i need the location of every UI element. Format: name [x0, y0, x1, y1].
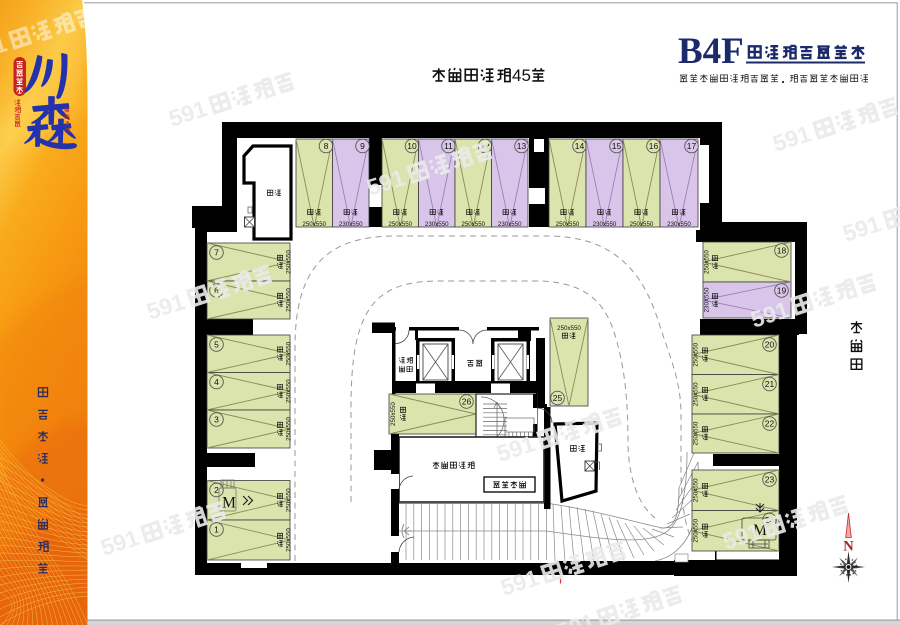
svg-text:22: 22 — [765, 419, 775, 429]
svg-text:250x550: 250x550 — [704, 250, 711, 274]
svg-text:250x550: 250x550 — [388, 221, 412, 228]
svg-text:26: 26 — [462, 397, 472, 407]
svg-text:230x550: 230x550 — [425, 221, 449, 228]
svg-text:250x550: 250x550 — [630, 221, 654, 228]
svg-text:B4F: B4F — [678, 31, 744, 72]
svg-text:250x550: 250x550 — [286, 488, 293, 512]
svg-text:250x550: 250x550 — [693, 421, 700, 445]
svg-text:250x550: 250x550 — [286, 250, 293, 274]
svg-text:25: 25 — [553, 393, 563, 403]
svg-text:250x550: 250x550 — [693, 382, 700, 406]
svg-text:250x550: 250x550 — [286, 288, 293, 312]
svg-text:250x550: 250x550 — [286, 528, 293, 552]
svg-text:45: 45 — [512, 66, 531, 85]
svg-text:11: 11 — [444, 141, 453, 151]
svg-text:14: 14 — [575, 141, 585, 151]
svg-text:23: 23 — [765, 475, 775, 485]
svg-text:21: 21 — [765, 379, 775, 389]
svg-text:250x550: 250x550 — [390, 402, 397, 426]
svg-text:1: 1 — [214, 525, 219, 535]
svg-text:17: 17 — [687, 141, 697, 151]
svg-text:230x550: 230x550 — [593, 221, 617, 228]
svg-text:230X550: 230X550 — [704, 287, 711, 312]
svg-text:250x550: 250x550 — [286, 341, 293, 365]
svg-text:250x550: 250x550 — [556, 221, 580, 228]
svg-text:3: 3 — [214, 415, 219, 425]
svg-text:250x550: 250x550 — [693, 518, 700, 542]
svg-text:20: 20 — [765, 340, 775, 350]
svg-text:10: 10 — [407, 141, 417, 151]
svg-text:230x550: 230x550 — [339, 221, 363, 228]
svg-text:250x550: 250x550 — [286, 379, 293, 403]
svg-text:18: 18 — [777, 246, 787, 256]
svg-text:M: M — [222, 495, 236, 512]
svg-text:N: N — [843, 539, 854, 555]
svg-text:8: 8 — [324, 141, 329, 151]
svg-text:250x550: 250x550 — [693, 478, 700, 502]
svg-text:2: 2 — [214, 485, 219, 495]
svg-text:250x550: 250x550 — [693, 342, 700, 366]
svg-text:5: 5 — [214, 340, 219, 350]
svg-text:15: 15 — [612, 141, 622, 151]
svg-text:250x550: 250x550 — [557, 325, 581, 332]
svg-text:230x550: 230x550 — [498, 221, 522, 228]
svg-text:250x550: 250x550 — [461, 221, 485, 228]
svg-text:250x550: 250x550 — [286, 417, 293, 441]
svg-text:4: 4 — [214, 377, 219, 387]
svg-text:13: 13 — [517, 141, 527, 151]
svg-text:230x550: 230x550 — [667, 221, 691, 228]
svg-text:16: 16 — [649, 141, 659, 151]
svg-text:19: 19 — [777, 286, 787, 296]
svg-text:9: 9 — [360, 141, 365, 151]
svg-text:250x550: 250x550 — [302, 221, 326, 228]
svg-text:7: 7 — [214, 248, 219, 258]
